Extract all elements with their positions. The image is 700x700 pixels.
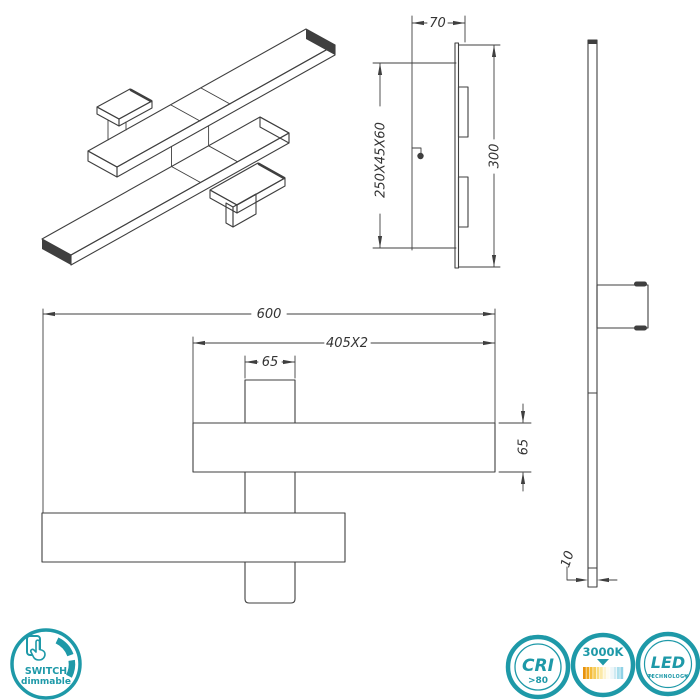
iso-bracket-b-dark-edge — [259, 164, 284, 178]
side-mount-bracket-upper — [459, 87, 469, 137]
front-upper-bar — [193, 423, 495, 472]
temp-bar — [593, 667, 596, 679]
finger — [31, 640, 45, 660]
arrowhead — [193, 341, 205, 345]
arrowhead — [43, 312, 55, 316]
temperature-gradient-bars — [583, 667, 623, 679]
profile-bracket-tab — [634, 282, 647, 287]
cable-entry-dot — [417, 153, 423, 159]
arrowhead — [378, 236, 382, 248]
temp-bar — [583, 667, 586, 679]
led-badge: LED TECHNOLOGY — [638, 634, 698, 694]
dimmer-gauge-arc — [57, 640, 70, 655]
iso-bracket-a-top — [97, 89, 152, 119]
side-bar-profile — [455, 43, 459, 268]
dim-total-width-label: 600 — [257, 307, 282, 322]
dim-mount-box-label: 250X45X60 — [374, 122, 389, 198]
drawing-canvas: 70 250X45X60 300 10 — [0, 0, 700, 700]
iso-upper-bar-left-end — [88, 151, 117, 177]
arrowhead — [576, 578, 588, 582]
touch-switch-icon — [27, 636, 45, 660]
iso-bracket-a-dark-edge — [131, 90, 151, 101]
dimmer-gauge-arc — [69, 660, 72, 676]
front-center-block-bottom — [245, 562, 295, 603]
temp-bar — [597, 667, 600, 679]
cable-entry-mark — [412, 148, 421, 153]
dim-depth-label: 70 — [429, 16, 446, 31]
arrowhead — [597, 578, 609, 582]
iso-lower-bar-right-end — [260, 117, 289, 143]
arrowhead — [521, 472, 525, 484]
temp-bar — [620, 667, 623, 679]
profile-view: 10 — [558, 40, 648, 587]
temp-bar — [617, 667, 620, 679]
iso-upper-bar-seam — [171, 105, 200, 121]
temp-bar — [603, 667, 606, 679]
iso-upper-bar-top-face — [88, 29, 335, 167]
cri-value: >80 — [528, 676, 548, 686]
iso-bracket-b-post-side — [226, 203, 233, 227]
pointer-triangle — [597, 659, 609, 666]
temp-bar — [586, 667, 589, 679]
iso-upper-bar-seam — [201, 88, 230, 104]
iso-lower-bar-seam — [172, 167, 201, 183]
profile-bracket-tab — [634, 326, 647, 331]
switch-badge-line1: SWITCH — [25, 666, 67, 677]
dim-bar-length-label: 405X2 — [326, 336, 368, 351]
dim-bar-height-label: 65 — [517, 439, 532, 456]
temp-bar — [614, 667, 617, 679]
arrowhead — [492, 45, 496, 57]
arrowhead — [453, 21, 465, 25]
profile-wall-bracket — [597, 285, 648, 328]
dim-block-width-label: 65 — [262, 355, 279, 370]
temp-bar — [610, 667, 613, 679]
arrowhead — [483, 341, 495, 345]
switch-badge-line2: dimmable — [21, 677, 71, 687]
arrowhead — [492, 255, 496, 267]
side-view: 70 250X45X60 300 — [373, 16, 503, 268]
profile-bar-top-cap — [588, 40, 597, 44]
front-view: 600 405X2 65 65 — [42, 307, 532, 603]
arrowhead — [412, 21, 424, 25]
iso-upper-bar-front-face — [117, 45, 335, 177]
dim-height-label: 300 — [488, 144, 503, 169]
cri-label: CRI — [522, 656, 554, 676]
cri-badge: CRI >80 — [508, 637, 568, 697]
led-label: LED — [651, 653, 685, 672]
arrowhead — [483, 312, 495, 316]
led-sub-label: TECHNOLOGY — [648, 674, 689, 680]
color-temperature-badge: 3000K — [573, 635, 633, 695]
arrowhead — [378, 63, 382, 75]
temp-bar — [590, 667, 593, 679]
arrowhead — [521, 411, 525, 423]
dim-thickness-label: 10 — [558, 549, 577, 569]
arrowhead — [245, 360, 257, 364]
iso-bracket-a-front — [119, 101, 152, 126]
arrowhead — [283, 360, 295, 364]
technical-drawing-page: 70 250X45X60 300 10 — [0, 0, 700, 700]
iso-lower-bar-seam — [209, 146, 238, 162]
temp-bar — [600, 667, 603, 679]
color-temperature-label: 3000K — [583, 645, 625, 659]
front-center-block-mid — [245, 472, 295, 513]
iso-lower-bar-top-face — [42, 117, 289, 255]
front-center-block-top — [245, 380, 295, 423]
iso-bracket-b-front — [237, 178, 285, 213]
isometric-view — [42, 29, 335, 265]
switch-dimmable-badge: SWITCH dimmable — [12, 630, 80, 698]
front-lower-bar — [42, 513, 345, 562]
profile-bar — [588, 40, 597, 587]
temp-bar — [607, 667, 610, 679]
side-mount-bracket-lower — [459, 177, 469, 227]
